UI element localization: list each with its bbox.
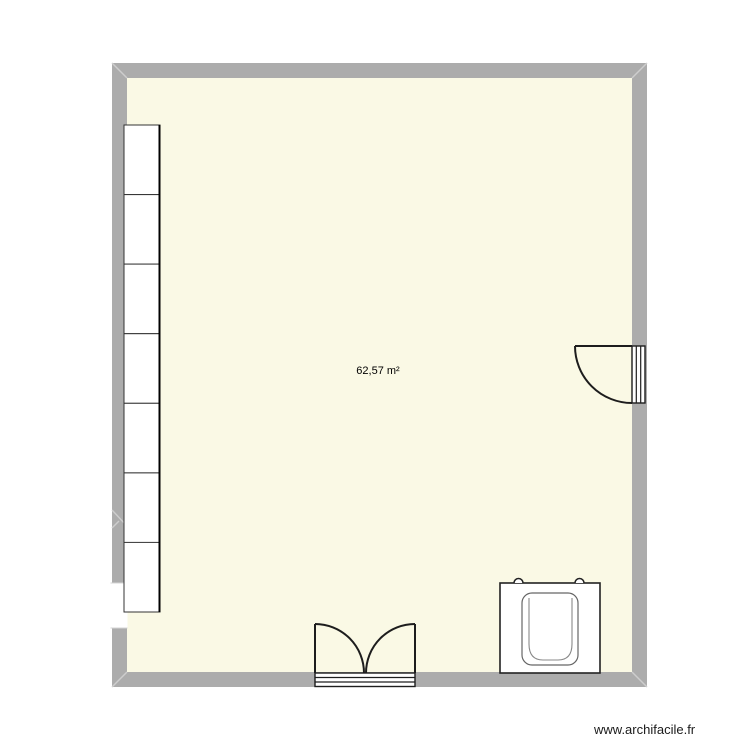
- watermark: www.archifacile.fr: [594, 722, 695, 737]
- cabinet-unit[interactable]: [124, 334, 160, 404]
- cabinet-unit[interactable]: [124, 473, 160, 543]
- cabinet-unit[interactable]: [124, 542, 160, 612]
- bathtub[interactable]: [500, 579, 600, 674]
- cabinet-unit[interactable]: [124, 403, 160, 473]
- cabinet-column: [124, 125, 160, 612]
- bathtub-tap-right: [575, 579, 584, 584]
- cabinet-unit[interactable]: [124, 125, 160, 195]
- wall-top[interactable]: [112, 63, 647, 78]
- cabinet-unit[interactable]: [124, 264, 160, 334]
- room-area-label: 62,57 m²: [320, 365, 436, 377]
- floor-plan-canvas: 62,57 m² www.archifacile.fr: [0, 0, 750, 750]
- bathtub-tap-left: [514, 579, 523, 584]
- cabinet-unit[interactable]: [124, 195, 160, 265]
